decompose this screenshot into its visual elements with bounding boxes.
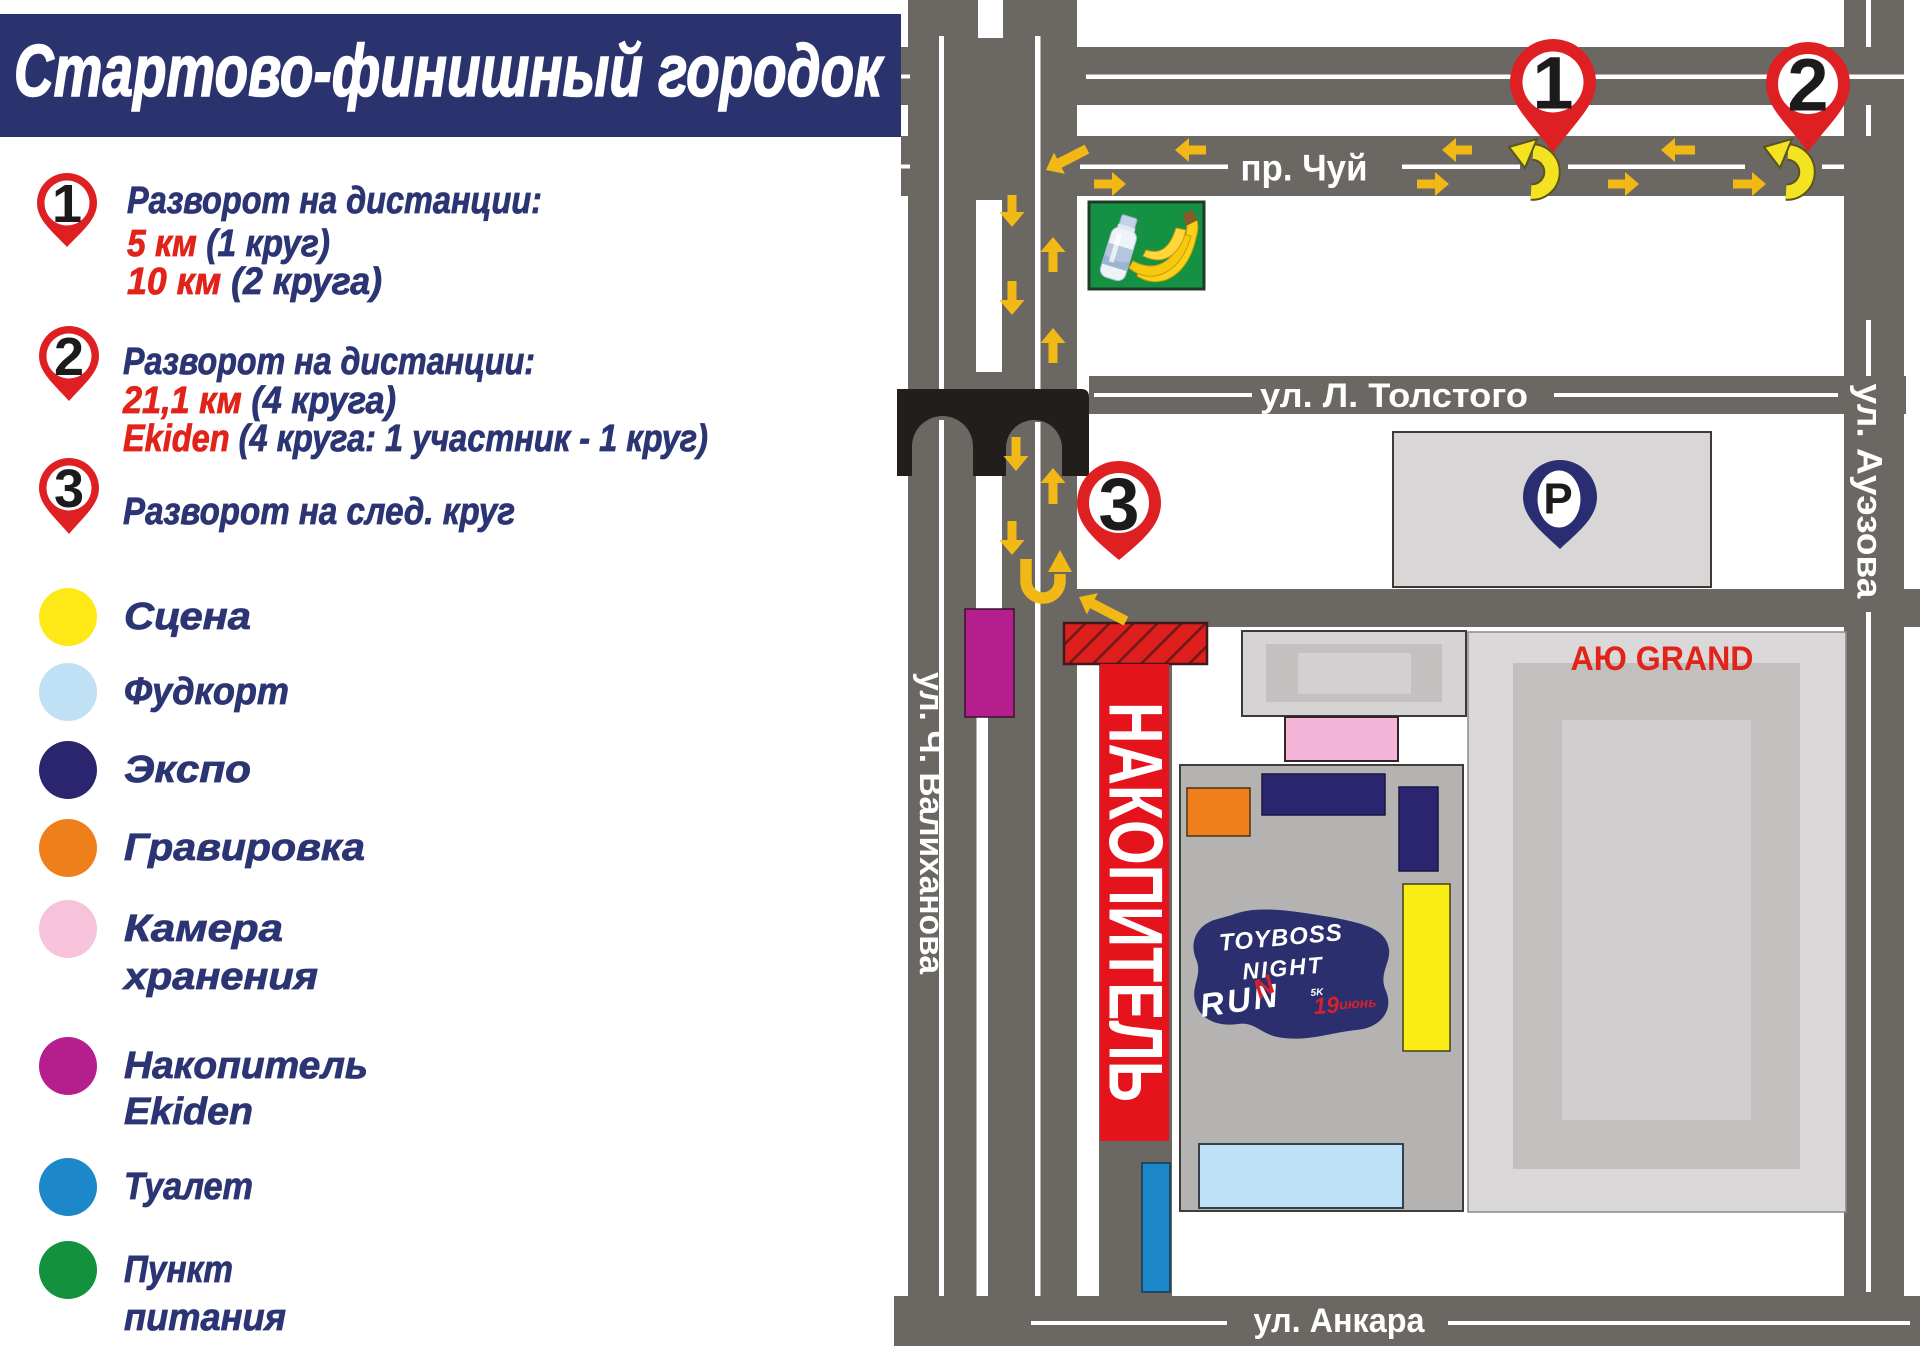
svg-text:5 км (1 круг): 5 км (1 круг): [127, 223, 330, 265]
svg-text:Туалет: Туалет: [124, 1166, 253, 1208]
svg-text:Ekiden: Ekiden: [124, 1091, 253, 1133]
svg-text:2: 2: [1787, 44, 1828, 127]
svg-text:ул. Л. Толстого: ул. Л. Толстого: [1260, 377, 1528, 415]
svg-text:Разворот на дистанции:: Разворот на дистанции:: [123, 341, 535, 383]
svg-text:ул. Ч. Валиханова: ул. Ч. Валиханова: [912, 672, 950, 975]
svg-text:Экспо: Экспо: [124, 749, 251, 791]
svg-text:Разворот на дистанции:: Разворот на дистанции:: [127, 180, 542, 222]
svg-text:1: 1: [1532, 42, 1573, 125]
svg-text:2: 2: [54, 327, 84, 387]
svg-text:ул. Анкара: ул. Анкара: [1254, 1302, 1426, 1340]
svg-text:3: 3: [1098, 463, 1139, 546]
svg-text:3: 3: [54, 459, 84, 519]
svg-text:Ekiden (4 круга: 1 участник -: Ekiden (4 круга: 1 участник - 1 круг): [123, 418, 708, 460]
svg-text:5K: 5K: [1310, 987, 1324, 999]
svg-text:P: P: [1543, 475, 1572, 524]
svg-text:питания: питания: [124, 1297, 286, 1339]
svg-text:НАКОПИТЕЛЬ: НАКОПИТЕЛЬ: [1093, 702, 1178, 1102]
svg-text:Пункт: Пункт: [124, 1249, 233, 1291]
svg-text:Разворот на след. круг: Разворот на след. круг: [123, 491, 515, 533]
svg-text:ул. Ауэзова: ул. Ауэзова: [1850, 384, 1889, 600]
svg-text:10 км (2 круга): 10 км (2 круга): [127, 261, 382, 303]
svg-text:Фудкорт: Фудкорт: [124, 671, 289, 713]
svg-text:Накопитель: Накопитель: [124, 1045, 368, 1087]
svg-text:пр. Чуй: пр. Чуй: [1241, 148, 1368, 189]
svg-text:21,1 км (4 круга): 21,1 км (4 круга): [122, 380, 396, 422]
svg-text:Стартово-финишный городок: Стартово-финишный городок: [14, 31, 884, 112]
svg-text:хранения: хранения: [122, 956, 318, 998]
svg-text:Сцена: Сцена: [124, 596, 251, 638]
svg-text:1: 1: [52, 174, 82, 234]
svg-text:Камера: Камера: [124, 908, 283, 950]
svg-text:АЮ GRAND: АЮ GRAND: [1571, 640, 1754, 678]
svg-text:Гравировка: Гравировка: [124, 827, 365, 869]
